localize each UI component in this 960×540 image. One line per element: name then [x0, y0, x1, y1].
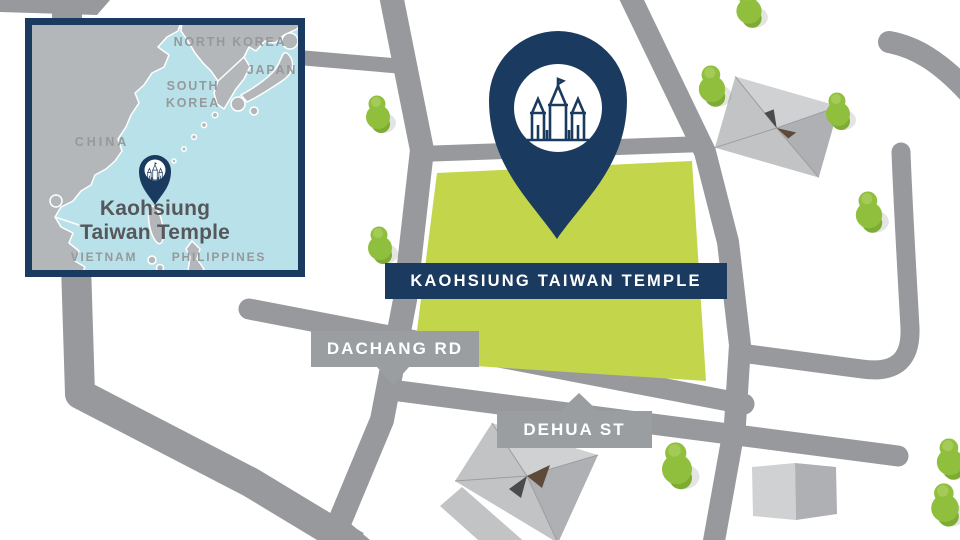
tree-icon: [736, 0, 768, 28]
tree-icon: [856, 191, 889, 232]
inset-map: NORTH KOREA JAPAN SOUTH KOREA CHINA VIET…: [25, 18, 305, 277]
building: [752, 463, 837, 520]
tree-icon: [937, 438, 960, 479]
inset-temple-name-line2: Taiwan Temple: [80, 221, 230, 245]
label-philippines: PHILIPPINES: [146, 248, 292, 266]
label-vietnam: VIETNAM: [54, 248, 154, 266]
inset-temple-name: Kaohsiung Taiwan Temple: [65, 196, 245, 246]
inset-temple-name-line1: Kaohsiung: [100, 197, 210, 221]
road-label-dehua: DEHUA ST: [497, 411, 652, 448]
tree-icon: [366, 96, 396, 134]
dehua-label: DEHUA ST: [523, 420, 625, 440]
building: [715, 77, 839, 178]
tree-icon: [699, 65, 732, 106]
label-north-korea: NORTH KOREA: [145, 33, 305, 51]
tree-icon: [931, 483, 960, 526]
label-china: CHINA: [52, 133, 152, 151]
temple-name-banner: KAOHSIUNG TAIWAN TEMPLE: [385, 263, 727, 299]
label-japan: JAPAN: [232, 61, 305, 79]
dachang-label: DACHANG RD: [327, 339, 463, 359]
temple-banner-label: KAOHSIUNG TAIWAN TEMPLE: [410, 272, 701, 291]
tree-icon: [368, 227, 398, 265]
road-label-dachang: DACHANG RD: [311, 331, 479, 367]
label-south-korea: SOUTH KOREA: [153, 78, 233, 112]
tree-icon: [662, 442, 700, 489]
map-canvas: KAOHSIUNG TAIWAN TEMPLE DACHANG RD DEHUA…: [0, 0, 960, 540]
